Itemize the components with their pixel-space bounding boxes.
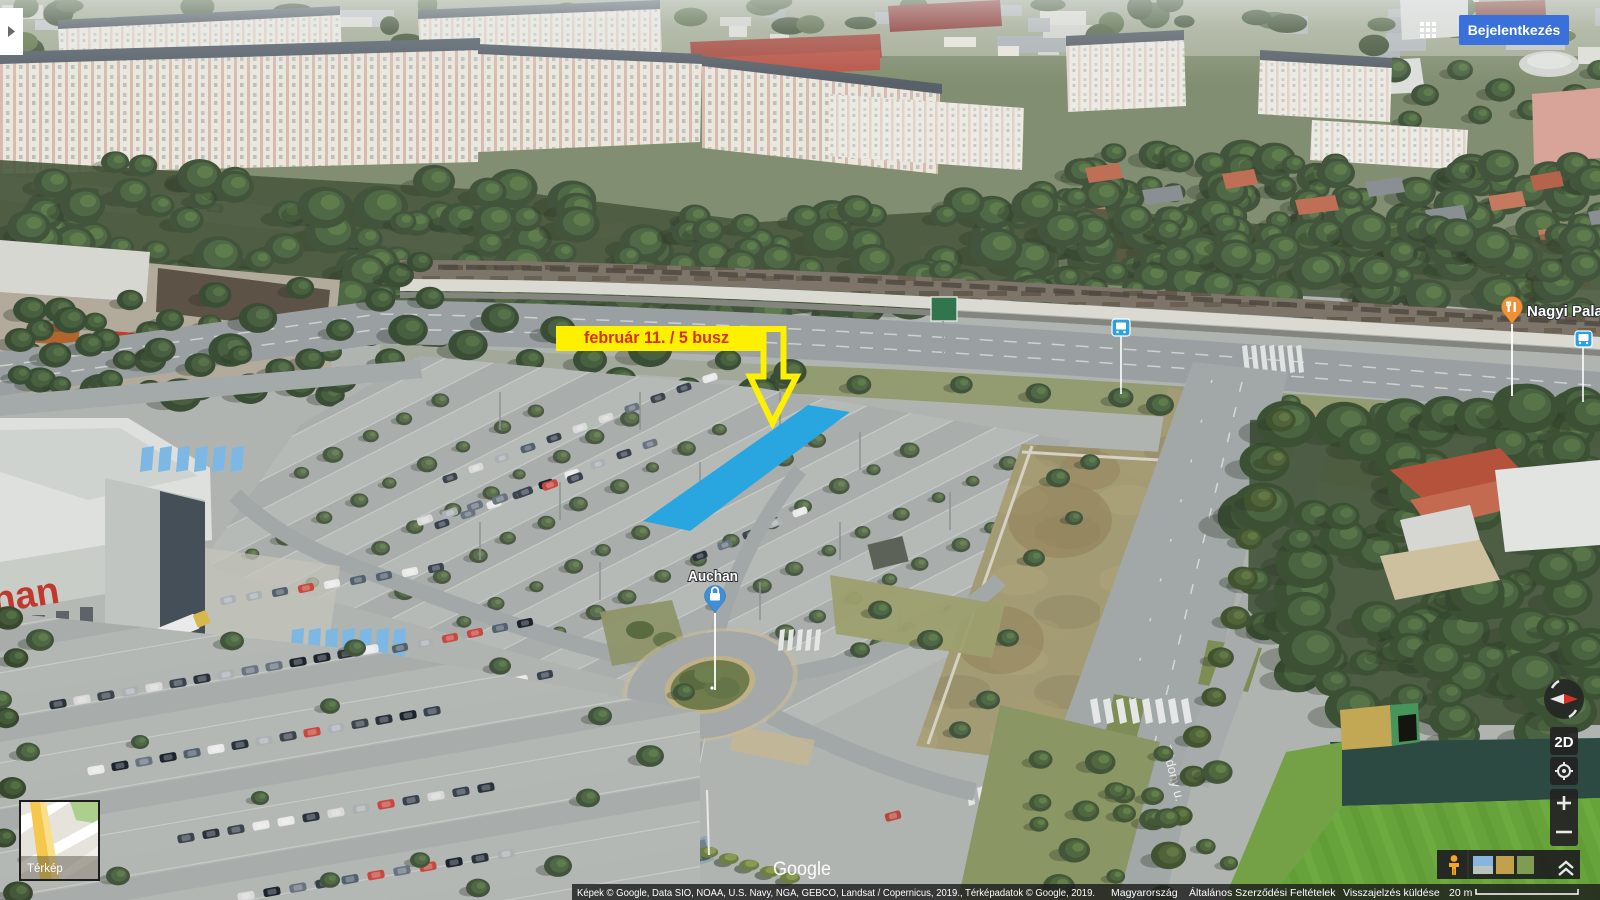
- svg-text:Képek © Google, Data SIO, NOAA: Képek © Google, Data SIO, NOAA, U.S. Nav…: [577, 888, 1095, 899]
- svg-text:Általános Szerződési Feltétele: Általános Szerződési Feltételek: [1189, 886, 1336, 899]
- svg-text:Auchan: Auchan: [688, 569, 738, 585]
- svg-text:Térkép: Térkép: [27, 863, 63, 875]
- svg-text:20 m: 20 m: [1449, 887, 1473, 899]
- svg-text:Bejelentkezés: Bejelentkezés: [1468, 22, 1561, 38]
- svg-text:Google: Google: [773, 858, 831, 880]
- svg-text:február 11. / 5 busz: február 11. / 5 busz: [584, 328, 729, 347]
- svg-text:Magyarország: Magyarország: [1111, 887, 1178, 899]
- svg-text:2D: 2D: [1554, 734, 1573, 751]
- svg-text:Visszajelzés küldése: Visszajelzés küldése: [1343, 887, 1440, 899]
- svg-text:Nagyi Palacs: Nagyi Palacs: [1527, 303, 1600, 320]
